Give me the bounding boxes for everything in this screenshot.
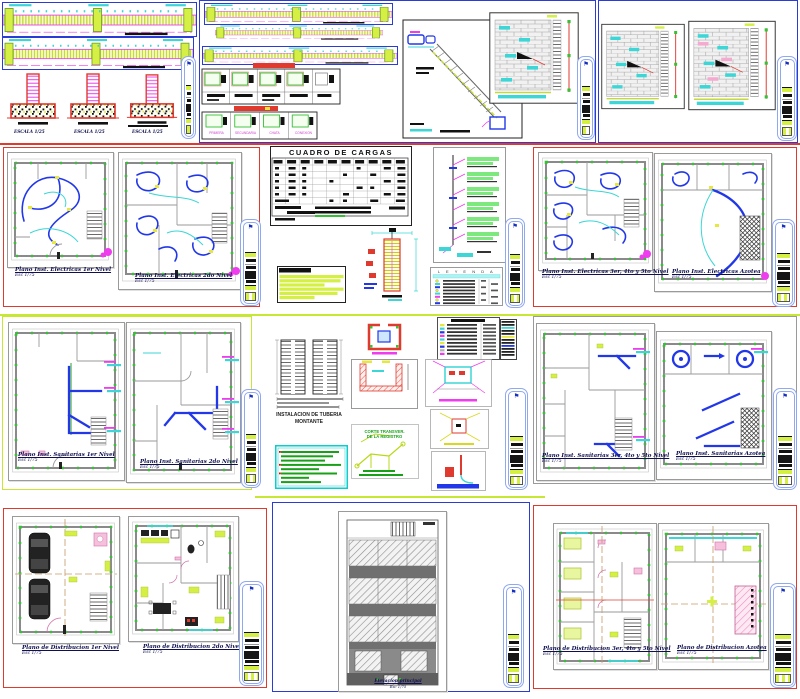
cuadro-de-cargas-title: CUADRO DE CARGAS <box>271 147 411 157</box>
zapata-label-3: ESCALA 1/25 <box>132 129 163 134</box>
zapata-label-1: ESCALA 1/25 <box>14 129 45 134</box>
zapata-detail-3 <box>124 71 180 129</box>
cuadro-de-cargas: CUADRO DE CARGAS <box>270 146 412 226</box>
north-arrow-icon: ⚑ <box>186 62 191 69</box>
plan-title-sanitarias-azotea: Plano Inst. Sanitarias Azotea Esc 1/75 <box>676 451 765 462</box>
title-strip-body: ⚑ <box>243 222 259 304</box>
title-strip: ⚑ <box>240 219 261 306</box>
wall-detail-drawing-2 <box>601 21 685 112</box>
title-strip: ⚑ <box>241 389 261 488</box>
plan-title-distribucion-2do: Plano de Distribucion 2do Nivel Esc 1/75 <box>143 644 241 655</box>
north-arrow-icon: ⚑ <box>582 62 590 69</box>
electrical-notes-box <box>277 266 346 303</box>
beam-elevation-drawing-1 <box>204 3 393 25</box>
plan-title-electricas-1er: Plano Inst. Electricas 1er Nivel Esc 1/7… <box>15 267 111 278</box>
beam-elevation-drawing-2 <box>215 25 383 40</box>
montante-detail-drawing <box>271 337 348 411</box>
title-strip-body: ⚑ <box>184 59 194 137</box>
title-strip-body: ⚑ <box>776 391 795 488</box>
north-arrow-icon: ⚑ <box>782 62 792 69</box>
mid-separator-chartreuse <box>255 496 545 498</box>
viga-type-label-2: SECUNDARIA <box>232 131 259 135</box>
title-strip-body: ⚑ <box>780 59 795 139</box>
title-strip-body: ⚑ <box>773 586 794 686</box>
title-strip: ⚑ <box>505 388 528 490</box>
plan-title-sanitarias-1er: Plano Inst. Sanitarias 1er Nivel Esc 1/7… <box>18 452 115 463</box>
wall-detail-drawing-3 <box>688 19 776 112</box>
wall-detail-drawing-1 <box>489 12 579 104</box>
plan-electricas-2do <box>118 152 242 290</box>
plan-title-distribucion-3-4-5: Plano de Distribucion 3er, 4to y 5to Niv… <box>543 646 671 657</box>
cuadro-de-cargas-grid <box>271 157 409 223</box>
beam-section-drawing-2 <box>2 37 194 70</box>
plan-distribucion-1er <box>12 516 120 644</box>
tank-plan-detail <box>362 318 407 358</box>
row-separator-red <box>0 143 800 145</box>
north-arrow-icon: ⚑ <box>777 225 790 232</box>
title-strip: ⚑ <box>777 56 797 141</box>
title-strip: ⚑ <box>772 219 795 307</box>
title-strip-body: ⚑ <box>580 59 593 138</box>
mini-legend-table <box>500 319 517 360</box>
north-arrow-icon: ⚑ <box>510 224 520 231</box>
zapata-detail-1 <box>4 71 62 129</box>
title-strip: ⚑ <box>505 218 525 308</box>
corte-transversal-drawing <box>352 360 417 394</box>
corte-caption: CORTE TRANSVER. DE LA REGISTRO <box>353 429 416 440</box>
corte-transversal-box: CORTE TRANSVER. DE LA REGISTRO <box>351 359 418 409</box>
column-schedule-table <box>201 63 341 105</box>
electrical-leyenda-rows <box>431 274 502 305</box>
plan-title-electricas-azotea: Plano Inst. Electricas Azotea Esc 1/75 <box>672 269 761 280</box>
viga-type-label-3: CHATA <box>261 131 288 135</box>
north-arrow-icon: ⚑ <box>778 394 792 401</box>
montante-caption: INSTALACION DE TUBERIA MONTANTE <box>270 412 348 425</box>
zapata-label-2: ESCALA 1/25 <box>74 129 105 134</box>
plan-title-electricas-3-4-5: Plano Inst. Electricas 3er, 4to y 5to Ni… <box>542 269 669 280</box>
north-arrow-icon: ⚑ <box>246 395 256 402</box>
viga-type-label-1: PRIMERA <box>203 131 230 135</box>
zapata-note-bar <box>128 125 168 127</box>
plan-electricas-3-4-5 <box>538 152 653 271</box>
plan-title-electricas-2do: Plano Inst. Electricas 2do Nivel Esc 1/7… <box>135 273 232 284</box>
plan-title-distribucion-1er: Plano de Distribucion 1er Nivel Esc 1/75 <box>22 645 119 656</box>
plan-distribucion-2do <box>128 516 239 642</box>
title-strip-body: ⚑ <box>775 222 793 305</box>
title-strip-body: ⚑ <box>508 221 523 306</box>
elevation-drawing <box>338 511 447 692</box>
sanitary-notes-box <box>275 445 348 489</box>
plan-electricas-1er <box>7 152 114 268</box>
north-arrow-icon: ⚑ <box>775 589 791 596</box>
electrical-riser-diagram <box>433 147 506 263</box>
title-strip: ⚑ <box>181 56 196 139</box>
plan-title-distribucion-azotea: Plano de Distribucion Azotea Esc 1/75 <box>677 645 767 656</box>
title-strip: ⚑ <box>503 584 524 688</box>
title-strip-body: ⚑ <box>506 587 522 686</box>
north-arrow-icon: ⚑ <box>245 225 256 232</box>
north-arrow-icon: ⚑ <box>510 394 523 401</box>
plan-title-sanitarias-2do: Plano Inst. Sanitarias 2do Nivel Esc 1/7… <box>140 459 238 470</box>
north-arrow-icon: ⚑ <box>244 587 259 594</box>
tank-section-detail <box>425 359 492 407</box>
beam-section-drawing-1 <box>2 2 197 37</box>
plan-title-sanitarias-3-4-5: Plano Inst. Sanitarias 3er, 4to y 5to Ni… <box>542 453 669 464</box>
title-strip: ⚑ <box>770 583 796 688</box>
title-strip: ⚑ <box>773 388 797 490</box>
grounding-well-detail <box>362 227 424 303</box>
electrical-leyenda-title: L E Y E N D A <box>431 268 502 274</box>
title-strip: ⚑ <box>239 581 264 686</box>
title-strip-body: ⚑ <box>508 391 526 488</box>
sanitary-legend-table <box>437 317 500 360</box>
viga-type-label-4: CONEXION <box>290 131 317 135</box>
electrical-leyenda: L E Y E N D A <box>430 267 503 306</box>
title-strip-body: ⚑ <box>244 392 259 486</box>
elevation-title: Elevacion principal Esc 1/75 <box>368 679 428 689</box>
cad-sheet-collage: ESCALA 1/25 ESCALA 1/25 ESCALA 1/25 PRIM… <box>0 0 800 699</box>
title-strip: ⚑ <box>577 56 595 140</box>
zapata-detail-2 <box>64 71 122 129</box>
north-arrow-icon: ⚑ <box>508 590 519 597</box>
box-detail <box>430 409 489 449</box>
title-strip-body: ⚑ <box>242 584 262 684</box>
valve-detail <box>431 451 486 491</box>
